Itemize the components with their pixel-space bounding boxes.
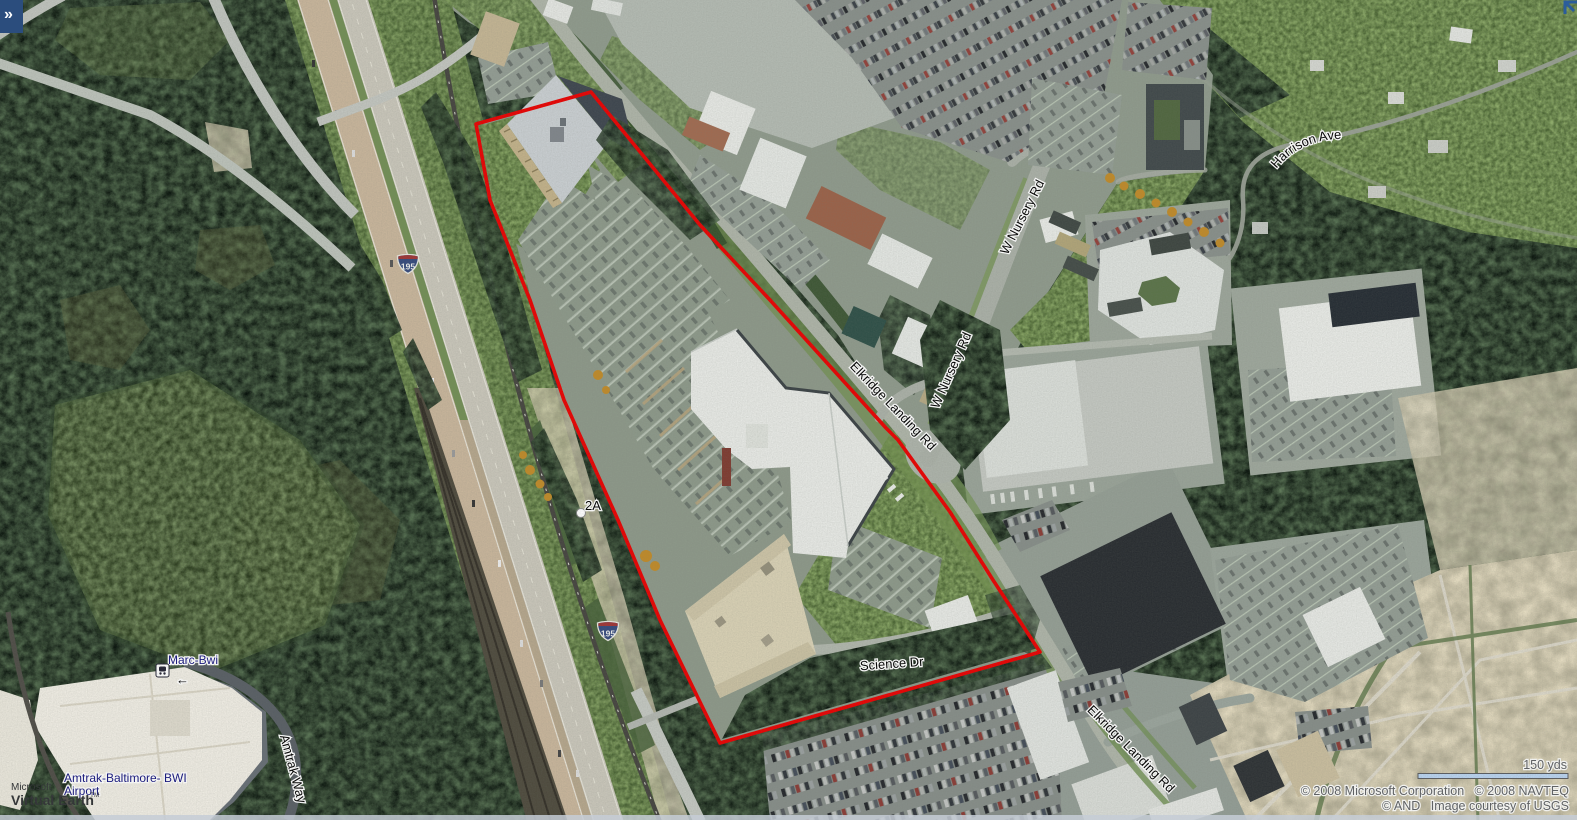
svg-text:»: » (4, 6, 13, 23)
